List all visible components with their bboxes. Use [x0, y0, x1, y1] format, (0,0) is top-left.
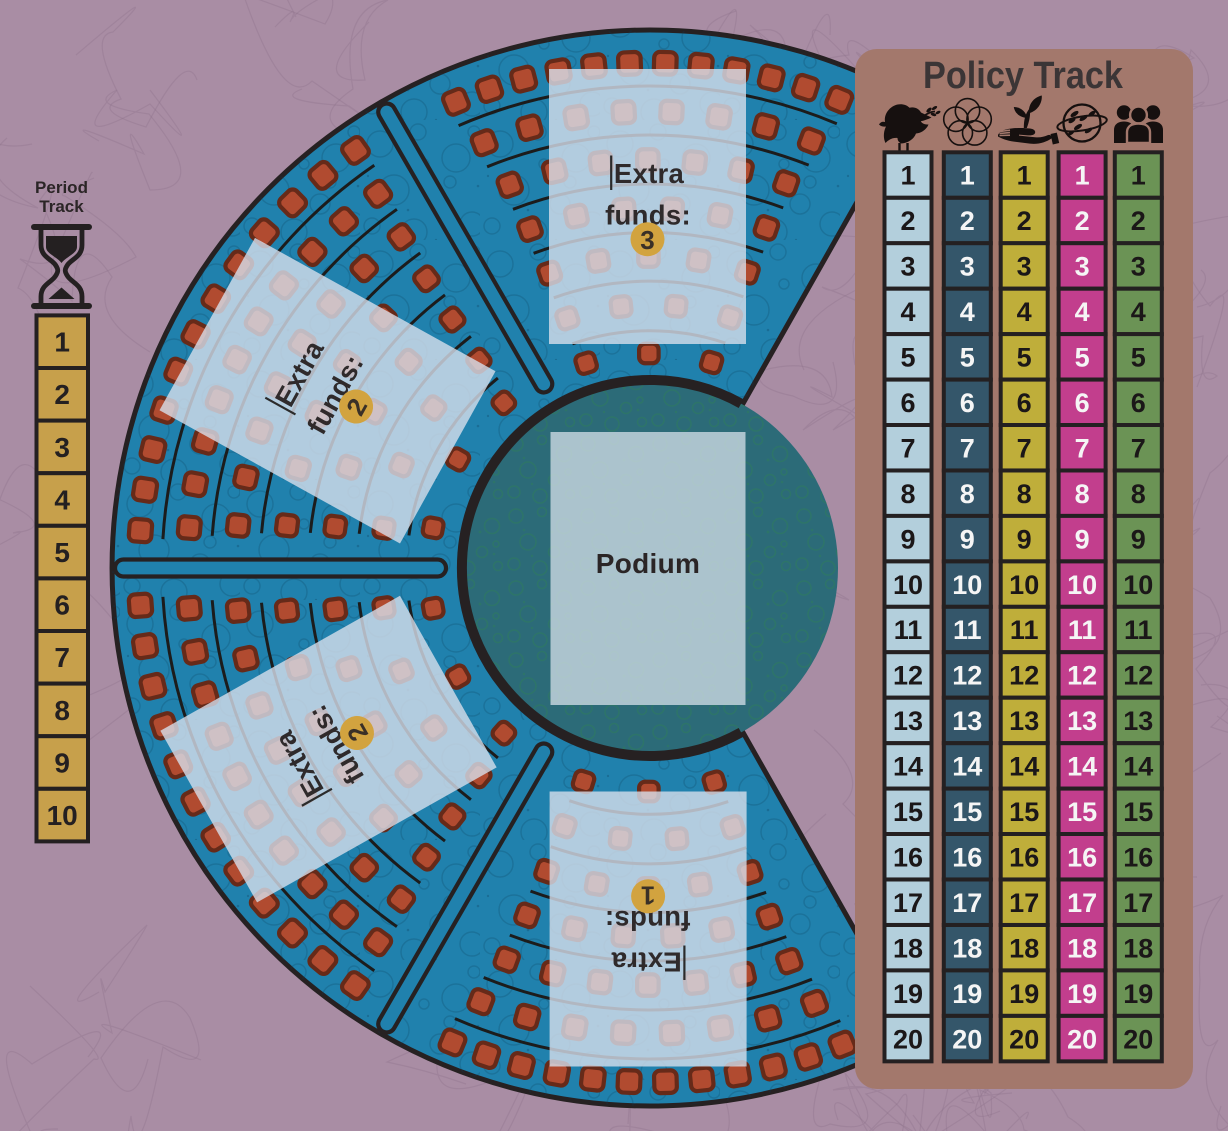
svg-text:5: 5 [1017, 343, 1032, 373]
svg-text:18: 18 [1067, 933, 1097, 963]
svg-text:17: 17 [1009, 888, 1039, 918]
svg-text:18: 18 [893, 933, 923, 963]
svg-text:2: 2 [1131, 206, 1146, 236]
svg-text:15: 15 [893, 797, 923, 827]
svg-text:2: 2 [960, 206, 975, 236]
svg-text:11: 11 [1124, 615, 1153, 645]
svg-text:9: 9 [1075, 524, 1090, 554]
svg-text:4: 4 [960, 297, 975, 327]
svg-text:1: 1 [1075, 161, 1090, 191]
svg-text:8: 8 [960, 479, 975, 509]
svg-text:5: 5 [1131, 343, 1146, 373]
svg-text:11: 11 [953, 615, 982, 645]
svg-text:3: 3 [1017, 252, 1032, 282]
svg-text:14: 14 [893, 752, 923, 782]
svg-text:6: 6 [900, 388, 915, 418]
svg-text:12: 12 [1123, 661, 1153, 691]
svg-text:5: 5 [900, 343, 915, 373]
svg-text:9: 9 [960, 524, 975, 554]
svg-text:4: 4 [1017, 297, 1032, 327]
svg-text:11: 11 [1068, 615, 1097, 645]
svg-text:3: 3 [640, 225, 654, 255]
svg-text:8: 8 [1131, 479, 1146, 509]
svg-text:1: 1 [900, 161, 915, 191]
svg-text:7: 7 [54, 642, 70, 673]
svg-text:5: 5 [54, 537, 70, 568]
svg-text:4: 4 [1075, 297, 1090, 327]
svg-text:8: 8 [54, 695, 70, 726]
svg-text:17: 17 [952, 888, 982, 918]
svg-text:17: 17 [1123, 888, 1153, 918]
svg-text:Podium: Podium [596, 548, 700, 579]
svg-text:19: 19 [1009, 979, 1039, 1009]
svg-text:8: 8 [1017, 479, 1032, 509]
svg-text:10: 10 [47, 800, 78, 831]
svg-text:Extra: Extra [614, 158, 685, 189]
svg-text:10: 10 [1009, 570, 1039, 600]
svg-text:3: 3 [1075, 252, 1090, 282]
svg-text:7: 7 [900, 433, 915, 463]
svg-text:12: 12 [1009, 661, 1039, 691]
svg-text:11: 11 [894, 615, 923, 645]
svg-text:1: 1 [641, 881, 655, 911]
svg-text:6: 6 [1131, 388, 1146, 418]
svg-text:16: 16 [1067, 842, 1097, 872]
svg-text:13: 13 [1009, 706, 1039, 736]
svg-text:20: 20 [1067, 1024, 1097, 1054]
svg-text:6: 6 [1075, 388, 1090, 418]
svg-text:2: 2 [1017, 206, 1032, 236]
svg-text:12: 12 [893, 661, 923, 691]
svg-text:8: 8 [1075, 479, 1090, 509]
svg-text:16: 16 [1009, 842, 1039, 872]
svg-text:3: 3 [960, 252, 975, 282]
svg-text:15: 15 [952, 797, 982, 827]
svg-text:20: 20 [1123, 1024, 1153, 1054]
svg-text:1: 1 [960, 161, 975, 191]
svg-text:15: 15 [1009, 797, 1039, 827]
svg-text:6: 6 [54, 590, 70, 621]
svg-text:16: 16 [952, 842, 982, 872]
svg-text:14: 14 [1067, 752, 1097, 782]
svg-text:13: 13 [1123, 706, 1153, 736]
svg-text:14: 14 [1123, 752, 1153, 782]
svg-text:19: 19 [1067, 979, 1097, 1009]
svg-text:3: 3 [1131, 252, 1146, 282]
svg-text:5: 5 [960, 343, 975, 373]
svg-text:7: 7 [1131, 433, 1146, 463]
svg-text:6: 6 [960, 388, 975, 418]
svg-text:1: 1 [1017, 161, 1032, 191]
svg-text:3: 3 [900, 252, 915, 282]
svg-text:10: 10 [893, 570, 923, 600]
svg-text:1: 1 [1131, 161, 1146, 191]
svg-text:9: 9 [1131, 524, 1146, 554]
svg-text:4: 4 [900, 297, 915, 327]
svg-text:7: 7 [960, 433, 975, 463]
svg-text:9: 9 [1017, 524, 1032, 554]
svg-text:15: 15 [1123, 797, 1153, 827]
svg-text:20: 20 [1009, 1024, 1039, 1054]
svg-text:18: 18 [1123, 933, 1153, 963]
svg-text:8: 8 [900, 479, 915, 509]
svg-text:20: 20 [893, 1024, 923, 1054]
svg-text:Track: Track [39, 197, 84, 216]
svg-text:6: 6 [1017, 388, 1032, 418]
svg-text:18: 18 [1009, 933, 1039, 963]
svg-text:16: 16 [893, 842, 923, 872]
svg-text:16: 16 [1123, 842, 1153, 872]
svg-text:14: 14 [952, 752, 982, 782]
svg-text:10: 10 [952, 570, 982, 600]
svg-text:9: 9 [54, 747, 70, 778]
svg-text:2: 2 [900, 206, 915, 236]
svg-text:13: 13 [952, 706, 982, 736]
svg-text:18: 18 [952, 933, 982, 963]
svg-text:14: 14 [1009, 752, 1039, 782]
svg-text:10: 10 [1123, 570, 1153, 600]
svg-text:11: 11 [1010, 615, 1039, 645]
svg-text:19: 19 [1123, 979, 1153, 1009]
svg-text:10: 10 [1067, 570, 1097, 600]
svg-text:3: 3 [54, 432, 70, 463]
svg-text:13: 13 [893, 706, 923, 736]
svg-text:7: 7 [1075, 433, 1090, 463]
svg-text:9: 9 [900, 524, 915, 554]
svg-text:1: 1 [54, 327, 70, 358]
svg-text:2: 2 [54, 379, 70, 410]
svg-text:20: 20 [952, 1024, 982, 1054]
svg-text:5: 5 [1075, 343, 1090, 373]
svg-text:4: 4 [1131, 297, 1146, 327]
svg-text:12: 12 [952, 661, 982, 691]
svg-text:Period: Period [35, 178, 88, 197]
svg-text:4: 4 [54, 484, 70, 515]
svg-text:2: 2 [1075, 206, 1090, 236]
svg-text:17: 17 [893, 888, 923, 918]
svg-text:12: 12 [1067, 661, 1097, 691]
svg-text:19: 19 [893, 979, 923, 1009]
svg-text:Extra: Extra [611, 947, 682, 978]
svg-text:19: 19 [952, 979, 982, 1009]
svg-text:17: 17 [1067, 888, 1097, 918]
svg-text:7: 7 [1017, 433, 1032, 463]
svg-text:15: 15 [1067, 797, 1097, 827]
svg-text:Policy Track: Policy Track [923, 55, 1124, 97]
svg-text:13: 13 [1067, 706, 1097, 736]
